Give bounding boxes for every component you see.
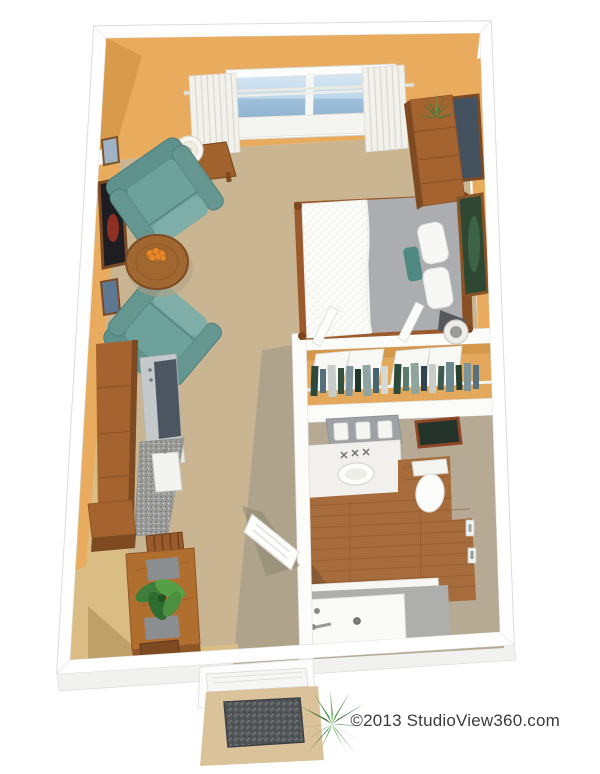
toilet-tank <box>412 459 448 476</box>
doormat <box>224 698 304 747</box>
rod-finial-left <box>184 91 189 96</box>
window-mullion <box>305 73 314 118</box>
copyright-watermark: ©2013 StudioView360.com <box>350 711 560 730</box>
floorplan-render: ©2013 StudioView360.com <box>0 0 600 774</box>
green-wall-art-detail <box>468 216 480 272</box>
range-knob-1 <box>148 368 152 372</box>
kitchen-sink <box>152 452 182 492</box>
rod-finial-right <box>410 83 415 88</box>
bed-duvet <box>302 200 371 338</box>
wall-art-small <box>102 137 119 165</box>
floorplan-svg: ©2013 StudioView360.com <box>0 0 600 774</box>
kitchen-lower-cabinet <box>88 500 136 538</box>
bathroom-wall-art <box>416 418 461 447</box>
round-hamper-inner <box>450 326 462 338</box>
wall-art-lower <box>101 279 120 315</box>
vanity-door-fronts <box>334 421 393 441</box>
tub-faucet <box>314 608 320 614</box>
closet <box>294 328 501 423</box>
wall-art-large-detail <box>107 214 119 242</box>
entry <box>198 659 368 766</box>
placemat-top <box>146 557 180 581</box>
bathroom <box>299 415 504 660</box>
range-knob-2 <box>149 378 153 382</box>
kitchen-faucet <box>163 449 168 454</box>
tub-drain <box>354 618 361 625</box>
